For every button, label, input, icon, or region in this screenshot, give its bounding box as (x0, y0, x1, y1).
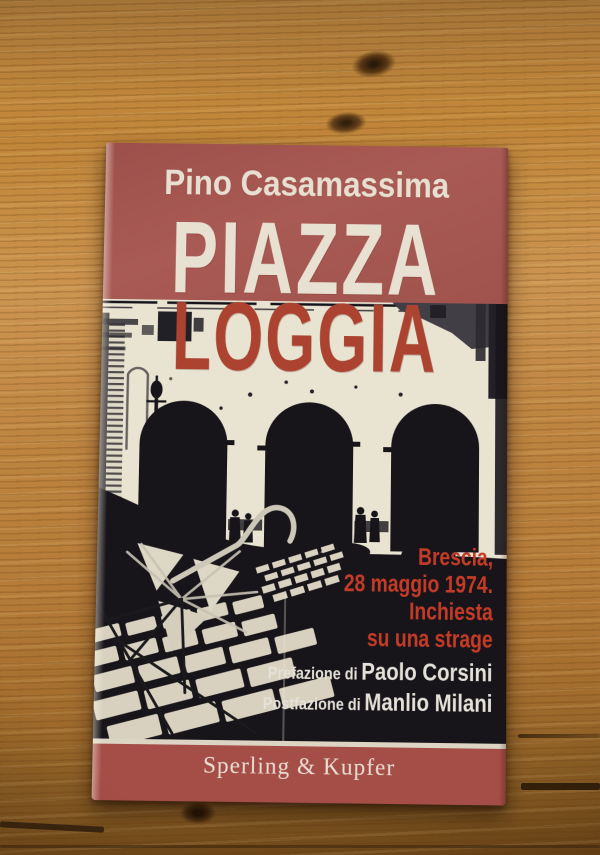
wood-knot (341, 41, 406, 87)
wood-knot (317, 105, 376, 141)
postface-name: Manlio Milani (364, 689, 492, 718)
book-cover: Pino Casamassima PIAZZA (91, 143, 508, 806)
title-loggia: LOGGIA (170, 299, 439, 387)
subtitle-line: su una strage (343, 625, 493, 654)
preface-line: Prefazione di Paolo Corsini (263, 657, 493, 691)
wood-knot (174, 798, 222, 828)
subtitle-line: Inchiesta (343, 597, 493, 626)
preface-label: Prefazione di (267, 663, 357, 684)
subtitle-line: 28 maggio 1974. (343, 570, 492, 599)
photo-scene: Pino Casamassima PIAZZA (0, 0, 600, 855)
title-piazza: PIAZZA (167, 207, 443, 304)
cover-top-block: Pino Casamassima PIAZZA (103, 143, 508, 304)
plank-seam (0, 845, 600, 848)
postface-label: Postfazione di (262, 694, 360, 715)
plank-seam (518, 734, 600, 738)
publisher-band: Sperling & Kupfer (91, 744, 506, 806)
plank-seam (0, 821, 104, 832)
preface-name: Paolo Corsini (361, 658, 492, 687)
postface-line: Postfazione di Manlio Milani (262, 688, 492, 722)
publisher-name: Sperling & Kupfer (92, 751, 506, 783)
subtitle-line: Brescia, (344, 543, 493, 572)
cover-photo: LOGGIA Brescia, 28 maggio 1974. Inchiest… (93, 299, 508, 744)
plank-seam (521, 783, 600, 790)
subtitle-block: Brescia, 28 maggio 1974. Inchiesta su un… (343, 543, 493, 654)
credits-block: Prefazione di Paolo Corsini Postfazione … (262, 657, 492, 721)
